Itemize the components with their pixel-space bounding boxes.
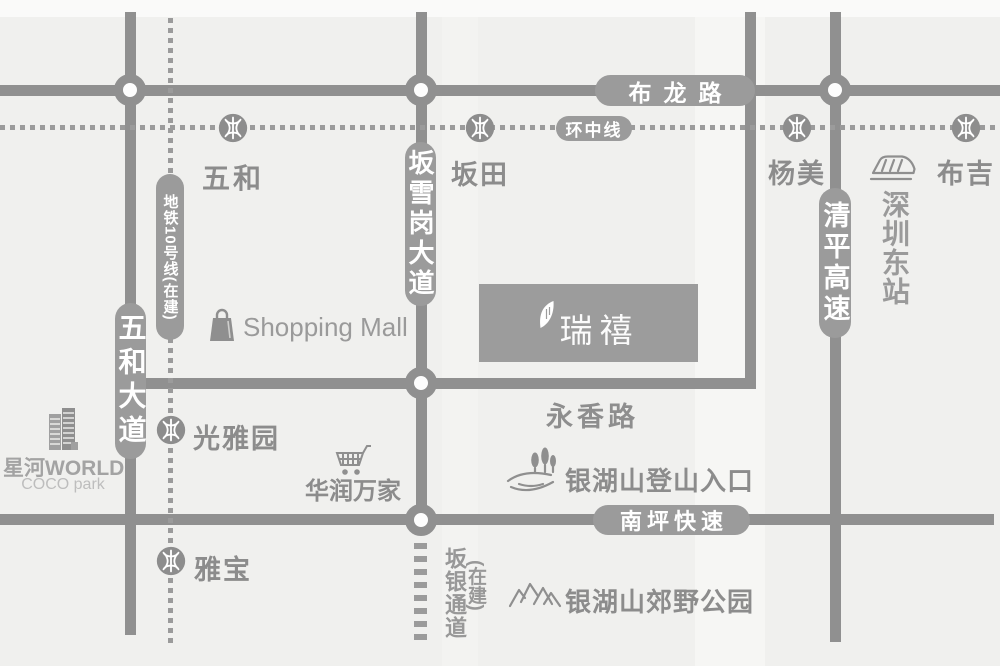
- shopping-bag-icon: [207, 307, 237, 343]
- station-label-bantian: 坂田: [432, 153, 528, 192]
- road-label-bulong: 布龙路: [595, 75, 755, 106]
- road-label-banyin-status: (在建): [462, 560, 489, 611]
- mountain-icon: [508, 580, 562, 608]
- building-icon: [46, 406, 78, 452]
- metro-station-icon: [218, 113, 248, 143]
- junction-bulong-wuhe: [114, 74, 146, 106]
- poi-label-coco-park: COCO park: [3, 476, 123, 494]
- metro-label-text: 地铁10号线(在建): [160, 194, 181, 321]
- metro-station-icon: [156, 415, 186, 445]
- station-label-yabao: 雅宝: [194, 548, 252, 587]
- road-label-text: 五和大道: [111, 313, 151, 449]
- poi-label-huarun: 华润万家: [303, 471, 403, 506]
- road-label-text: 布龙路: [629, 74, 734, 108]
- metro-label-text: 环中线: [566, 116, 623, 141]
- poi-label-hiking-entrance: 银湖山登山入口: [565, 461, 754, 498]
- station-label-guangyayuan: 光雅园: [193, 417, 280, 456]
- train-icon: [868, 150, 918, 184]
- lake-trees-icon: [506, 446, 558, 492]
- junction-nanping-banxuegang: [405, 504, 437, 536]
- road-label-qingping: 清平高速: [819, 188, 851, 338]
- metro-station-icon: [465, 113, 495, 143]
- junction-yongxiang-banxuegang: [405, 367, 437, 399]
- road-label-text: 南坪快速: [620, 504, 728, 536]
- project-logo-text: 瑞禧: [560, 304, 640, 352]
- metro-station-icon: [782, 113, 812, 143]
- road-label-text: 清平高速: [816, 201, 855, 325]
- road-label-wuhe-avenue: 五和大道: [115, 303, 146, 459]
- road-label-nanping: 南坪快速: [593, 505, 750, 535]
- project-logo-box: 瑞禧: [479, 284, 698, 362]
- station-label-buji: 布吉: [918, 152, 1000, 191]
- station-label-yangmei: 杨美: [749, 152, 845, 191]
- location-map: 布龙路 南坪快速 环中线 五和大道 坂雪岗大道 清平高速 地铁10号线(在建) …: [0, 0, 1000, 666]
- metro-line-huanzhong: [0, 125, 1000, 130]
- station-label-shenzhen-east: 深圳东站: [874, 190, 914, 306]
- metro-label-huanzhong: 环中线: [556, 116, 632, 141]
- junction-bulong-qingping: [819, 74, 851, 106]
- road-unnamed-vertical: [745, 12, 756, 389]
- metro-station-icon: [951, 113, 981, 143]
- project-logo: 瑞禧: [538, 294, 640, 352]
- road-label-yongxiang: 永香路: [546, 395, 639, 434]
- leaf-icon: [538, 300, 556, 330]
- station-label-wuhe: 五和: [185, 157, 281, 197]
- poi-label-shopping-mall: Shopping Mall: [243, 312, 408, 343]
- road-yongxiang: [127, 378, 756, 389]
- road-banyin-under-construction: [414, 543, 427, 646]
- metro-label-line10: 地铁10号线(在建): [156, 174, 184, 340]
- junction-bulong-banxuegang: [405, 74, 437, 106]
- road-nanping-expressway: [0, 514, 994, 525]
- background-edge: [0, 0, 1000, 17]
- metro-station-icon: [156, 546, 186, 576]
- poi-label-country-park: 银湖山郊野公园: [565, 582, 754, 619]
